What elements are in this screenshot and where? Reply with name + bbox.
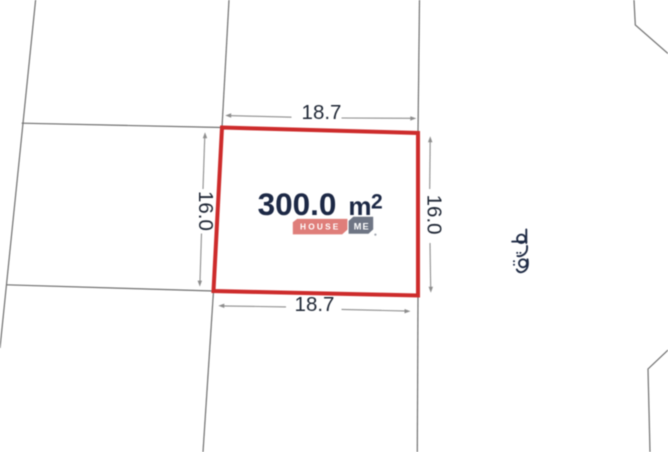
svg-text:16.0: 16.0 [194, 191, 217, 231]
svg-text:18.7: 18.7 [302, 101, 342, 124]
svg-text:m: m [348, 191, 371, 221]
svg-text:16.0: 16.0 [422, 195, 445, 235]
svg-text:2: 2 [371, 190, 383, 213]
svg-text:ME: ME [354, 221, 370, 231]
svg-text:18.7: 18.7 [295, 293, 335, 316]
svg-text:HOUSE: HOUSE [300, 222, 341, 232]
svg-text:300.0: 300.0 [258, 186, 337, 222]
